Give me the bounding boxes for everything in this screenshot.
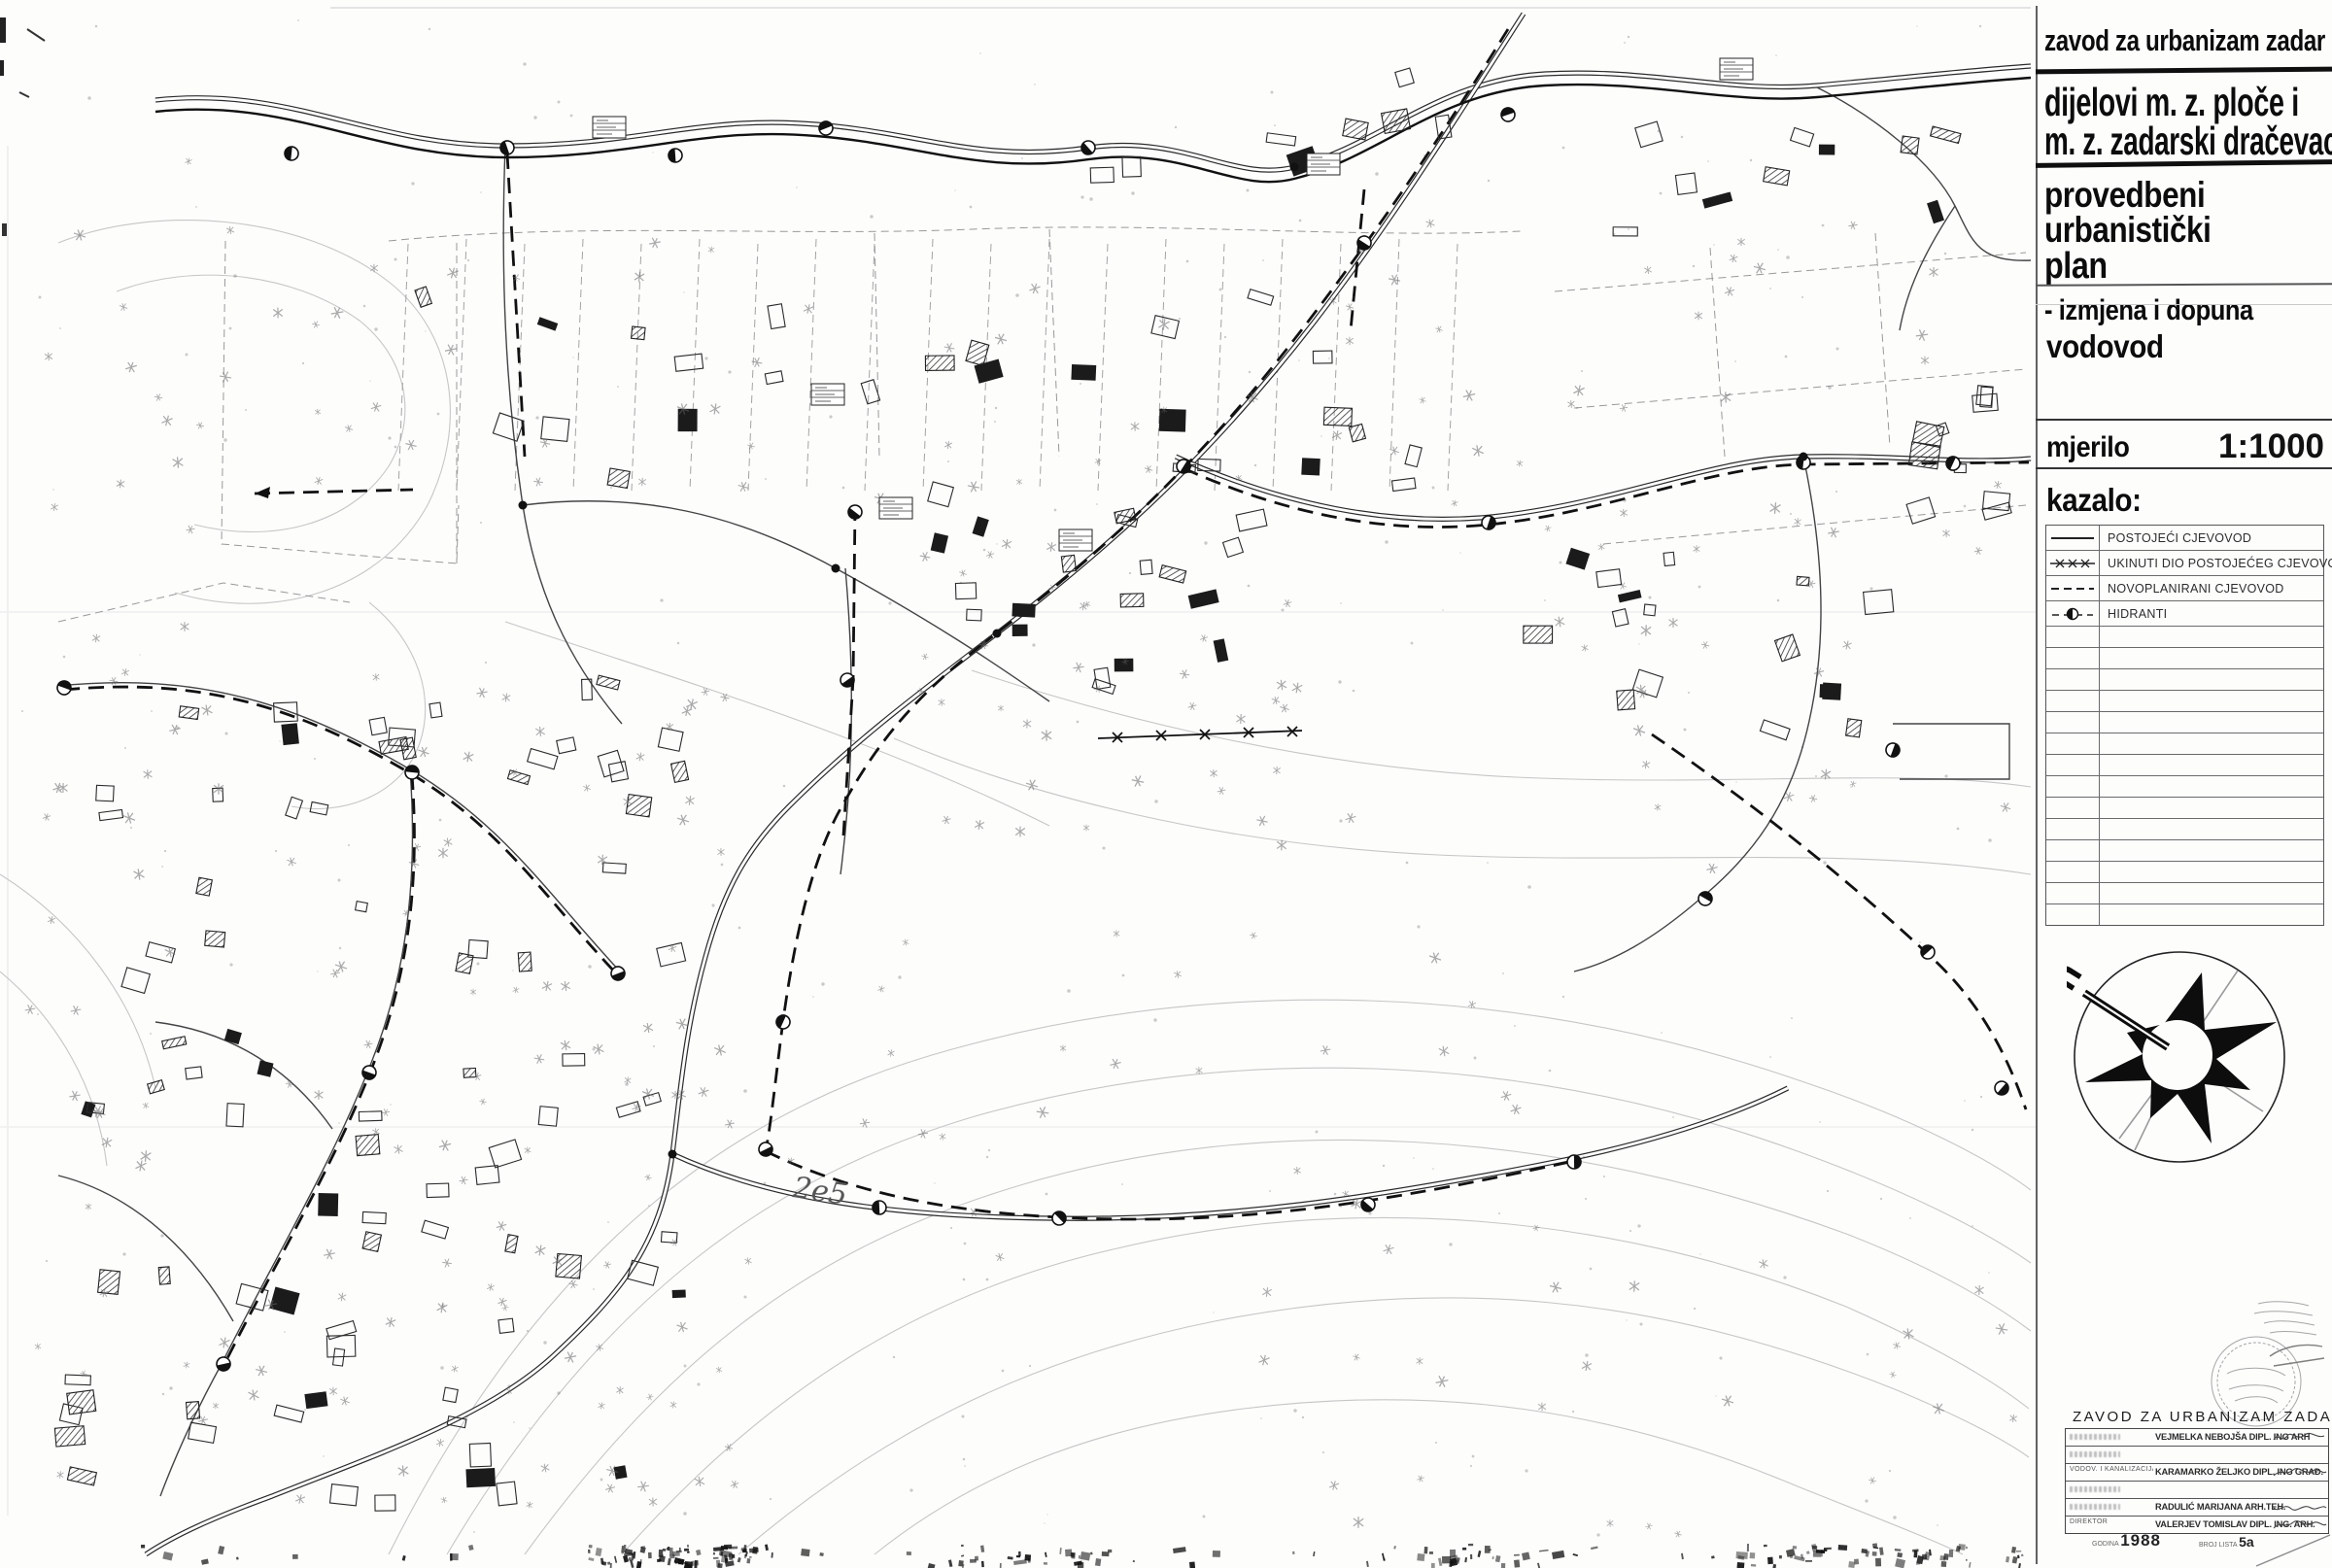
- scale-rule-top: [2036, 419, 2332, 421]
- sheet-number-label: BROJ LISTA: [2199, 1542, 2237, 1549]
- pipe-junctions: [519, 163, 1808, 1159]
- year-label: GODINA: [2092, 1541, 2118, 1548]
- signature-row: VODOV. I KANALIZACIJAKARAMARKO ŽELJKO DI…: [2066, 1463, 2328, 1481]
- planned-pipelines: [64, 29, 2029, 1366]
- signature-row: [2066, 1481, 2328, 1498]
- illegible-label: [2070, 1486, 2120, 1492]
- illegible-label: [2070, 1451, 2120, 1457]
- scan-artifacts: [0, 8, 2036, 1516]
- existing-pipeline: [155, 78, 2031, 182]
- dashed-line-icon: [2046, 576, 2100, 600]
- agency-title: zavod za urbanizam zadar: [2044, 23, 2325, 58]
- map-canvas: 2e5: [0, 0, 2036, 1568]
- legend-empty-row: [2046, 733, 2323, 754]
- faint-rule: [2036, 304, 2332, 305]
- signature-table: VEJMELKA NEBOJŠA DIPL. ING ARHVODOV. I K…: [2065, 1428, 2329, 1534]
- pipeline-arrowhead: [255, 487, 270, 498]
- pipeline-network: [64, 29, 2031, 1366]
- legend-label: POSTOJEĆI CJEVOVOD: [2100, 531, 2251, 545]
- title-block: zavod za urbanizam zadar dijelovi m. z. …: [2036, 0, 2332, 1568]
- sheet-subject: vodovod: [2046, 328, 2164, 365]
- detail-blocks: [593, 58, 1753, 551]
- legend-row: HIDRANTI: [2046, 600, 2323, 626]
- stray-pencil-line: [2254, 1533, 2332, 1568]
- signature-scrawl: [2272, 1430, 2328, 1445]
- legend-empty-row: [2046, 818, 2323, 839]
- year-value: 1988: [2120, 1531, 2161, 1550]
- title-rule: [2036, 67, 2332, 75]
- signatory-name: RADULIĆ MARIJANA ARH.TEH.: [2155, 1502, 2285, 1512]
- signature-scrawl: [2272, 1517, 2328, 1532]
- legend-empty-row: [2046, 626, 2323, 647]
- legend-table: POSTOJEĆI CJEVOVODUKINUTI DIO POSTOJEĆEG…: [2045, 525, 2324, 926]
- signature-role: VODOV. I KANALIZACIJA: [2066, 1464, 2153, 1481]
- legend-empty-row: [2046, 882, 2323, 903]
- scale-value: 1:1000: [2218, 427, 2324, 466]
- legend-empty-row: [2046, 861, 2323, 882]
- parcel-boundaries: [58, 227, 2026, 622]
- legend-empty-row: [2046, 754, 2323, 775]
- scan-noise-dots: [21, 19, 1992, 1537]
- plan-type-line2: urbanistički: [2044, 210, 2211, 251]
- legend-label: HIDRANTI: [2100, 607, 2167, 621]
- plan-type-line3: plan - izmjena i dopuna: [2044, 246, 2332, 329]
- plan-sheet: 2e5 zavod za urbanizam zadar dijelovi m.…: [0, 0, 2332, 1568]
- handwritten-annotation: 2e5: [790, 1171, 849, 1212]
- plan-area-line2: m. z. zadarski dračevac: [2044, 119, 2332, 164]
- legend-row: UKINUTI DIO POSTOJEĆEG CJEVOVODA: [2046, 550, 2323, 575]
- compass-hub: [2143, 1020, 2212, 1090]
- signature-role: [2066, 1447, 2153, 1463]
- compass-rose: n: [2067, 944, 2292, 1170]
- signature-row: [2066, 1446, 2328, 1463]
- legend-label: UKINUTI DIO POSTOJEĆEG CJEVOVODA: [2100, 557, 2332, 570]
- hydrant-icon: [2046, 601, 2100, 626]
- plan-word: plan: [2044, 246, 2108, 288]
- legend-empty-row: [2046, 903, 2323, 925]
- solid-line-icon: [2046, 526, 2100, 550]
- signature-block-header: ZAVOD ZA URBANIZAM ZADAR: [2073, 1409, 2332, 1425]
- legend-empty-row: [2046, 711, 2323, 733]
- signature-role: [2066, 1482, 2153, 1498]
- legend-empty-row: [2046, 839, 2323, 861]
- scale-rule-bottom: [2036, 467, 2332, 469]
- legend-empty-row: [2046, 775, 2323, 797]
- legend-title: kazalo:: [2046, 482, 2142, 519]
- legend-empty-row: [2046, 647, 2323, 668]
- x-marked-line-icon: [2046, 551, 2100, 575]
- signature-role: [2066, 1499, 2153, 1516]
- plan-amendment: - izmjena i dopuna: [2044, 294, 2253, 327]
- bottom-scan-band: [141, 1543, 2023, 1568]
- sheet-divider-line: [2036, 6, 2038, 1564]
- illegible-label: [2070, 1434, 2120, 1440]
- legend-empty-row: [2046, 668, 2323, 690]
- contour-lines: [0, 221, 2031, 1554]
- illegible-label: [2070, 1504, 2120, 1510]
- signature-scrawl: [2272, 1465, 2328, 1480]
- abolished-pipeline: [1098, 727, 1302, 742]
- signature-row: VEJMELKA NEBOJŠA DIPL. ING ARH: [2066, 1429, 2328, 1446]
- legend-empty-row: [2046, 797, 2323, 818]
- signature-row: RADULIĆ MARIJANA ARH.TEH.: [2066, 1498, 2328, 1516]
- legend-empty-row: [2046, 690, 2323, 711]
- signature-role: [2066, 1429, 2153, 1446]
- signature-scrawl: [2272, 1500, 2328, 1515]
- legend-row: POSTOJEĆI CJEVOVOD: [2046, 526, 2323, 550]
- stamp-signature: [2270, 1345, 2324, 1366]
- legend-row: NOVOPLANIRANI CJEVOVOD: [2046, 575, 2323, 600]
- sheet-number-value: 5a: [2239, 1534, 2254, 1550]
- legend-label: NOVOPLANIRANI CJEVOVOD: [2100, 582, 2284, 596]
- scale-label: mjerilo: [2046, 431, 2129, 464]
